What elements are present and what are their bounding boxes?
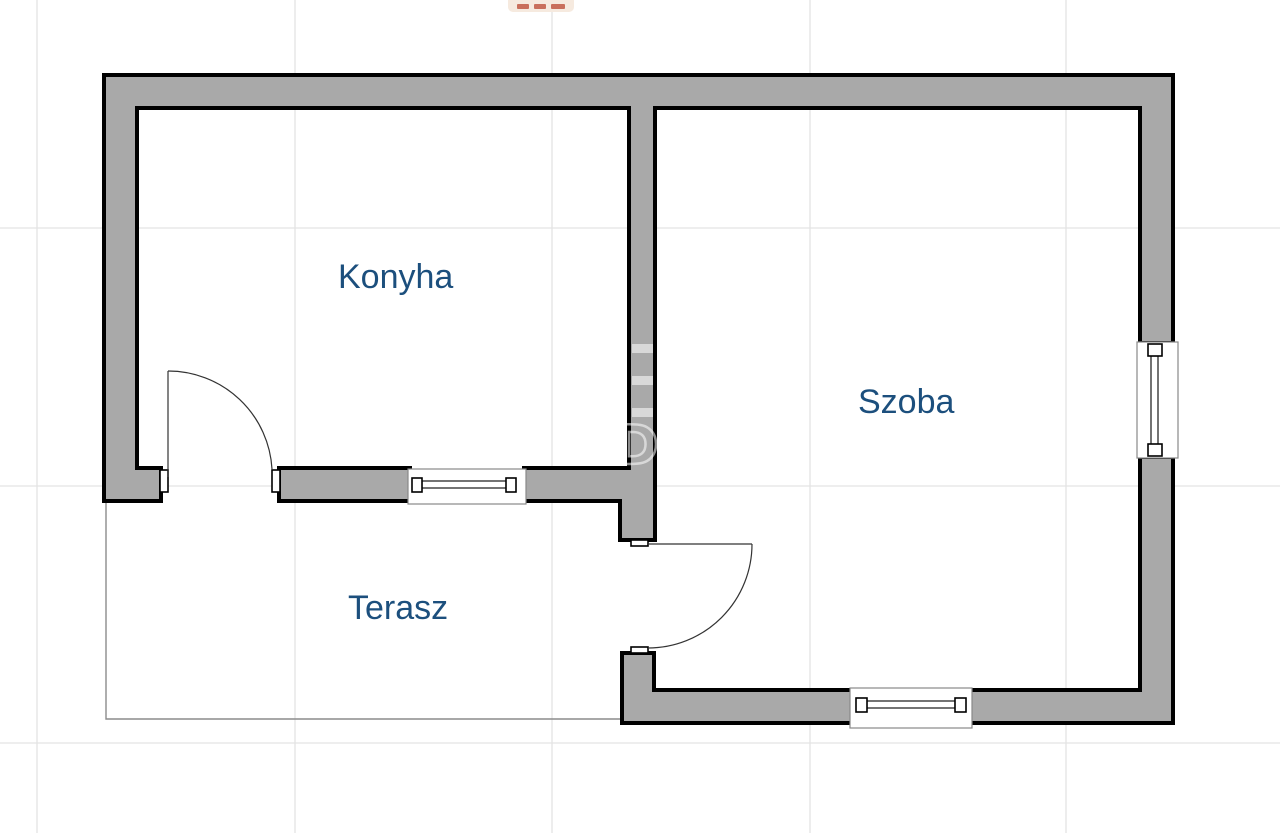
door-swing-arc [648,544,752,648]
wall-szoba-bottom-left [622,653,852,723]
window-glass [867,701,955,708]
window-glass [422,481,508,488]
door-jamb [631,540,648,546]
floor-plan-canvas: D Konyha Szoba Terasz [0,0,1280,833]
door-entry [631,540,752,653]
top-dimension-marks [508,0,574,12]
door-jamb [160,470,168,492]
dimension-dash [517,4,529,9]
walls [104,75,1173,723]
window-konyha [408,469,526,504]
dimension-dash [551,4,565,9]
window-szoba-bottom [850,688,972,728]
window-post [1148,344,1162,356]
wall-konyha-bottom-mid [279,468,410,501]
room-label-szoba: Szoba [858,382,954,422]
wall-right-lower [970,457,1173,723]
room-label-konyha: Konyha [338,257,453,297]
door-jamb [631,647,648,653]
floor-plan-drawing: D [0,0,1280,833]
window-glass [1151,356,1158,445]
watermark-letter: D [614,414,659,477]
window-post [506,478,516,492]
room-label-terasz: Terasz [348,588,448,628]
window-post [1148,444,1162,456]
window-szoba-right [1137,342,1178,458]
dimension-dash [534,4,546,9]
door-jamb [272,470,280,492]
window-post [856,698,867,712]
window-post [955,698,966,712]
window-post [412,478,422,492]
door-konyha [160,371,280,492]
door-swing-arc [168,371,272,469]
